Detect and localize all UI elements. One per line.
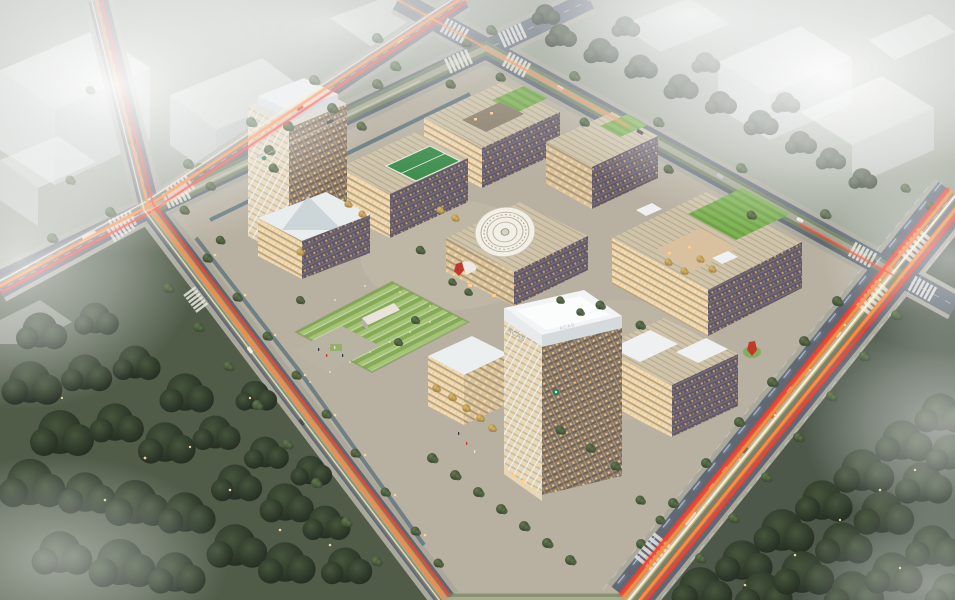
rendering-canvas: ACAS ACAS — [0, 0, 955, 600]
aerial-rendering: ACAS ACAS — [0, 0, 955, 600]
